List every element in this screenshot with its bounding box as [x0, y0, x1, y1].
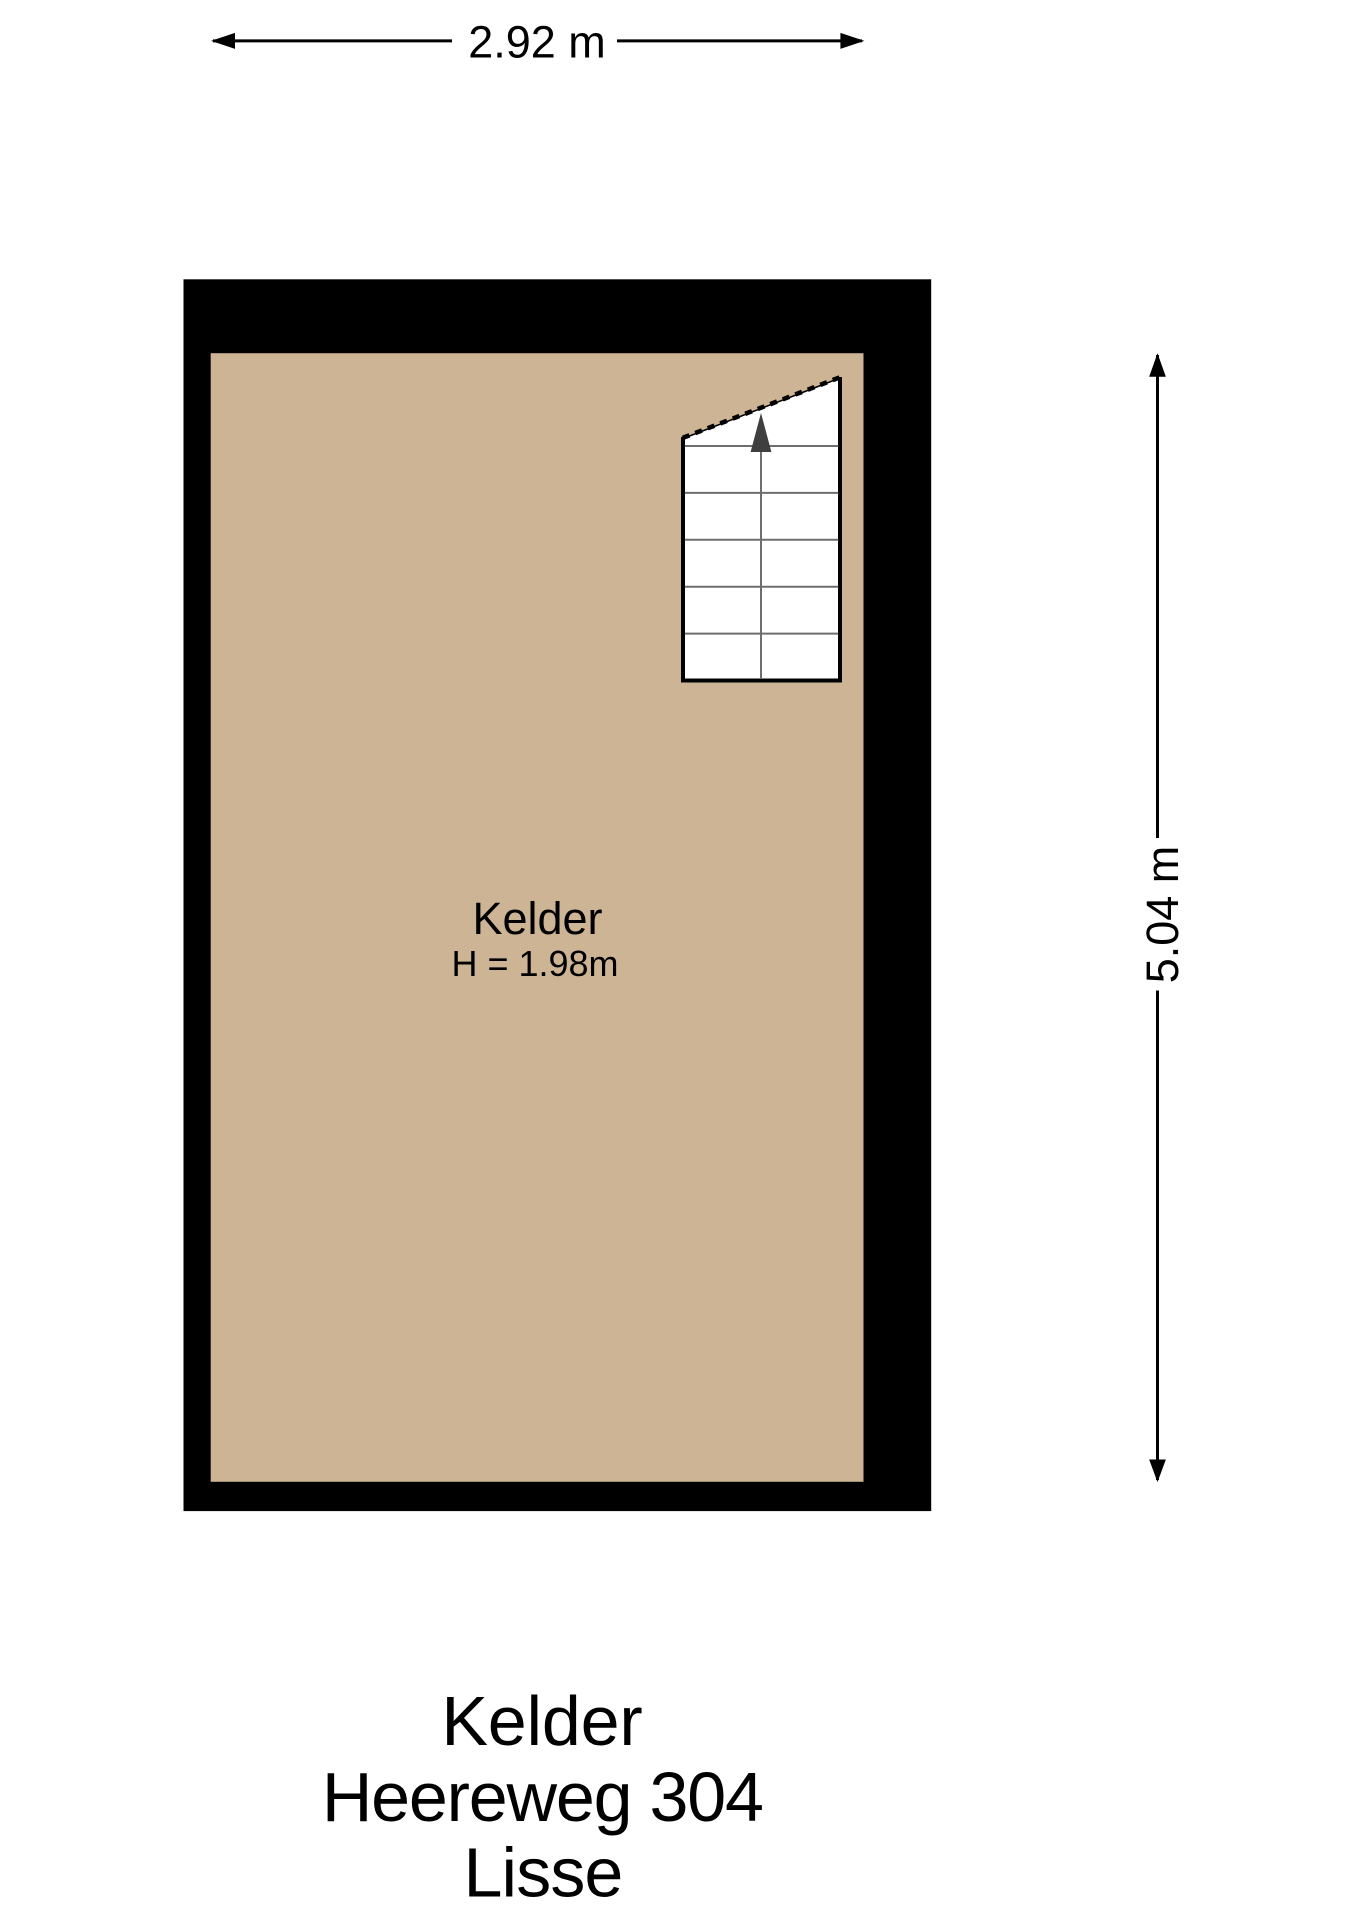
svg-text:Heereweg 304: Heereweg 304 — [322, 1758, 763, 1836]
svg-text:Lisse: Lisse — [464, 1833, 623, 1911]
svg-text:Kelder: Kelder — [472, 893, 602, 944]
svg-text:2.92 m: 2.92 m — [468, 17, 606, 68]
svg-text:5.04 m: 5.04 m — [1137, 846, 1188, 984]
svg-text:H = 1.98m: H = 1.98m — [451, 943, 618, 984]
svg-text:Kelder: Kelder — [441, 1682, 642, 1760]
